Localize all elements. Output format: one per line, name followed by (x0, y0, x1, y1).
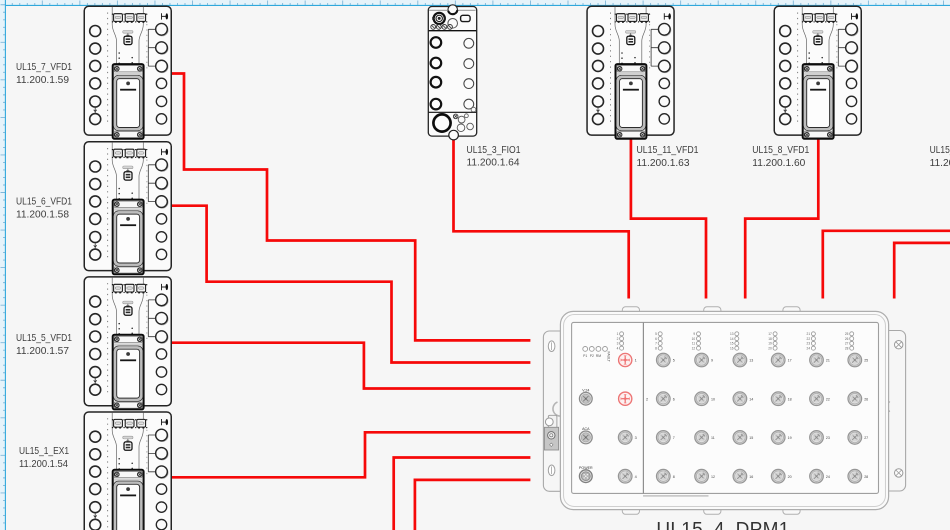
svg-text:18: 18 (768, 337, 772, 341)
svg-text:11: 11 (711, 436, 715, 440)
svg-text:UL15_1_EX1: UL15_1_EX1 (19, 446, 69, 457)
svg-text:6: 6 (655, 337, 657, 341)
svg-text:UL15_6_VFD1: UL15_6_VFD1 (16, 196, 72, 207)
svg-text:24: 24 (826, 475, 830, 479)
svg-text:28: 28 (864, 475, 868, 479)
svg-text:8: 8 (673, 475, 675, 479)
svg-text:10: 10 (711, 397, 715, 401)
svg-text:P2: P2 (590, 354, 594, 358)
svg-text:22: 22 (826, 397, 830, 401)
svg-text:11.200.1.54: 11.200.1.54 (19, 459, 68, 470)
svg-text:19: 19 (768, 342, 772, 346)
svg-text:26: 26 (864, 397, 868, 401)
svg-text:UL15_3_FIO1: UL15_3_FIO1 (467, 145, 521, 156)
svg-text:11.200.1.60: 11.200.1.60 (752, 158, 805, 169)
svg-text:2: 2 (646, 397, 648, 401)
svg-text:4: 4 (617, 347, 619, 351)
svg-text:25: 25 (845, 332, 849, 336)
svg-text:6: 6 (673, 397, 675, 401)
svg-text:UL15_2_VFD1: UL15_2_VFD1 (930, 145, 950, 156)
svg-text:RM: RM (596, 354, 601, 358)
svg-text:13: 13 (730, 332, 734, 336)
svg-text:UL15_11_VFD1: UL15_11_VFD1 (637, 145, 699, 156)
svg-text:19: 19 (788, 436, 792, 440)
svg-text:8: 8 (655, 346, 657, 350)
svg-text:17: 17 (768, 332, 772, 336)
svg-text:26: 26 (845, 337, 849, 341)
svg-text:11: 11 (692, 342, 696, 346)
svg-text:2: 2 (617, 337, 619, 341)
svg-text:ACA: ACA (582, 427, 590, 431)
svg-text:11.200.1.55: 11.200.1.55 (930, 158, 950, 169)
svg-text:28: 28 (845, 346, 849, 350)
svg-text:24: 24 (807, 346, 811, 350)
svg-text:3: 3 (617, 342, 619, 346)
svg-text:21: 21 (807, 332, 811, 336)
svg-text:1: 1 (635, 359, 637, 363)
svg-text:9: 9 (711, 359, 713, 363)
svg-text:5: 5 (655, 332, 657, 336)
svg-text:16: 16 (749, 475, 753, 479)
svg-text:14: 14 (749, 397, 753, 401)
svg-text:12: 12 (711, 475, 715, 479)
svg-text:27: 27 (864, 436, 868, 440)
svg-text:7: 7 (673, 436, 675, 440)
svg-text:22: 22 (807, 337, 811, 341)
svg-text:V.24: V.24 (582, 388, 589, 392)
svg-text:4: 4 (635, 475, 637, 479)
svg-text:25: 25 (864, 359, 868, 363)
svg-text:P1: P1 (583, 354, 587, 358)
svg-text:20: 20 (768, 346, 772, 350)
svg-text:11.200.1.58: 11.200.1.58 (16, 209, 69, 220)
svg-text:11.200.1.64: 11.200.1.64 (467, 158, 520, 169)
svg-text:21: 21 (826, 359, 830, 363)
svg-text:10: 10 (692, 337, 696, 341)
svg-text:11.200.1.63: 11.200.1.63 (637, 158, 690, 169)
svg-text:27: 27 (845, 342, 849, 346)
svg-text:UL15_5_VFD1: UL15_5_VFD1 (16, 333, 72, 344)
svg-text:14: 14 (730, 337, 734, 341)
svg-text:20: 20 (788, 475, 792, 479)
svg-text:15: 15 (749, 436, 753, 440)
svg-text:3: 3 (635, 436, 637, 440)
svg-text:5: 5 (673, 359, 675, 363)
svg-text:15: 15 (730, 342, 734, 346)
svg-text:23: 23 (807, 342, 811, 346)
svg-text:18: 18 (788, 397, 792, 401)
svg-text:UL15_7_VFD1: UL15_7_VFD1 (16, 62, 72, 73)
svg-text:9: 9 (693, 332, 695, 336)
svg-text:23: 23 (826, 436, 830, 440)
svg-text:17: 17 (788, 359, 792, 363)
svg-text:11.200.1.57: 11.200.1.57 (16, 346, 69, 357)
svg-text:11.200.1.59: 11.200.1.59 (16, 75, 69, 86)
svg-text:7: 7 (655, 342, 657, 346)
svg-text:16: 16 (730, 346, 734, 350)
svg-text:13: 13 (749, 359, 753, 363)
svg-text:FAULT: FAULT (607, 352, 611, 362)
svg-text:12: 12 (692, 346, 696, 350)
svg-text:POWER: POWER (579, 466, 593, 470)
svg-text:1: 1 (617, 332, 619, 336)
svg-text:UL15_8_VFD1: UL15_8_VFD1 (752, 145, 809, 156)
svg-text:UL15_4_DPM1: UL15_4_DPM1 (656, 519, 789, 530)
